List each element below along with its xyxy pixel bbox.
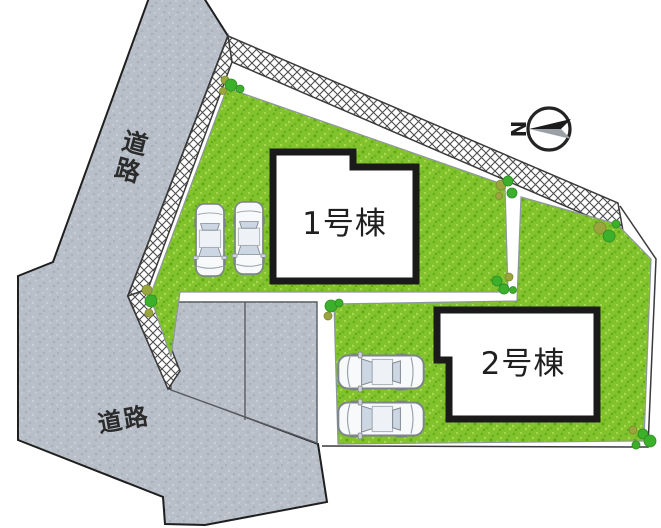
car-icon — [338, 399, 423, 439]
car-icon — [338, 352, 423, 392]
north-arrow-icon — [528, 108, 571, 150]
site-plan: 道路 道路 1号棟 2号棟 N — [0, 0, 661, 528]
car-icon — [232, 202, 266, 274]
site-plan-drawing — [0, 0, 661, 528]
building-1-footprint — [273, 152, 416, 281]
car-icon — [193, 204, 227, 276]
building-2-footprint — [437, 310, 597, 419]
